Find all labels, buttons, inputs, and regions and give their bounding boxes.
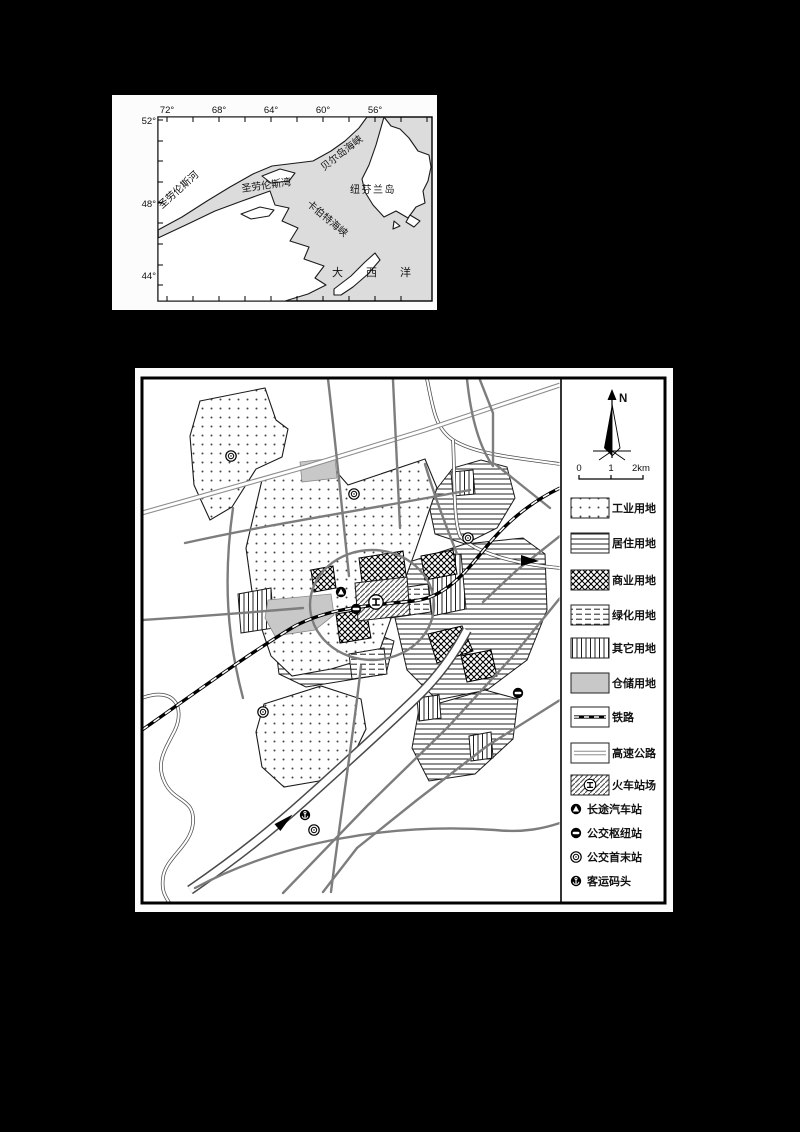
other-swatch xyxy=(571,638,609,658)
bus-terminal-icon xyxy=(349,489,359,499)
lon-label: 72° xyxy=(160,105,175,116)
scale-label-0: 0 xyxy=(576,463,581,474)
green-land-area xyxy=(349,648,387,679)
train-station-icon xyxy=(369,595,383,609)
bus-terminal-icon xyxy=(258,707,268,717)
longitude-labels: 72° 68° 64° 60° 56° xyxy=(160,105,383,116)
passenger-wharf-icon xyxy=(300,810,310,820)
industrial-swatch xyxy=(571,498,609,518)
legend-label-station-yard: 火车站场 xyxy=(612,778,656,792)
long-distance-bus-icon xyxy=(571,804,581,814)
legend-label-industrial: 工业用地 xyxy=(612,501,656,515)
latitude-labels: 52° 48° 44° xyxy=(142,116,157,282)
commercial-swatch xyxy=(571,570,609,590)
lon-label: 56° xyxy=(368,105,383,116)
regional-map-panel: 72° 68° 64° 60° 56° 52° 48° 44° 圣劳伦斯河 贝尔… xyxy=(112,95,437,310)
atlantic-ocean-label: 大西洋 xyxy=(332,265,434,279)
legend-label-green: 绿化用地 xyxy=(612,608,656,622)
legend-label-commercial: 商业用地 xyxy=(612,573,656,587)
scale-label-1: 1 xyxy=(608,463,613,474)
bus-terminal-icon xyxy=(226,451,236,461)
long-distance-bus-icon xyxy=(336,587,346,597)
city-map: N 0 1 2km xyxy=(135,368,673,912)
legend-label-expressway: 高速公路 xyxy=(612,746,657,760)
residential-swatch xyxy=(571,533,609,553)
newfoundland-label: 纽芬兰岛 xyxy=(350,183,396,196)
legend-label-warehouse: 仓储用地 xyxy=(611,676,656,690)
legend-label-other: 其它用地 xyxy=(612,641,656,655)
warehouse-swatch xyxy=(571,673,609,693)
passenger-wharf-icon xyxy=(571,876,581,886)
lat-label: 44° xyxy=(142,271,157,282)
legend-label-bus-terminal: 公交首末站 xyxy=(587,850,642,864)
legend-label-bus-hub: 公交枢纽站 xyxy=(587,826,642,840)
lon-label: 60° xyxy=(316,105,331,116)
regional-map: 72° 68° 64° 60° 56° 52° 48° 44° 圣劳伦斯河 贝尔… xyxy=(112,95,437,310)
lat-label: 48° xyxy=(142,199,157,210)
north-label: N xyxy=(619,393,627,405)
legend-label-residential: 居住用地 xyxy=(612,536,656,550)
scale-label-2: 2km xyxy=(632,463,650,474)
commercial-area xyxy=(421,550,457,580)
train-station-icon xyxy=(584,779,596,791)
green-swatch xyxy=(571,605,609,625)
legend-swatches xyxy=(571,498,609,795)
bus-terminal-icon xyxy=(463,533,473,543)
lon-label: 68° xyxy=(212,105,227,116)
legend-label-wharf: 客运码头 xyxy=(586,874,631,888)
bus-hub-icon xyxy=(513,688,523,698)
bus-terminal-icon xyxy=(571,852,581,862)
city-map-panel: N 0 1 2km xyxy=(135,368,673,912)
legend-label-long-distance-bus: 长途汽车站 xyxy=(587,802,642,816)
commercial-area xyxy=(461,650,497,682)
bus-hub-icon xyxy=(351,604,361,614)
lat-label: 52° xyxy=(142,116,157,127)
lon-label: 64° xyxy=(264,105,279,116)
bus-terminal-icon xyxy=(309,825,319,835)
bus-hub-icon xyxy=(571,828,581,838)
legend-label-railway: 铁路 xyxy=(612,710,635,724)
